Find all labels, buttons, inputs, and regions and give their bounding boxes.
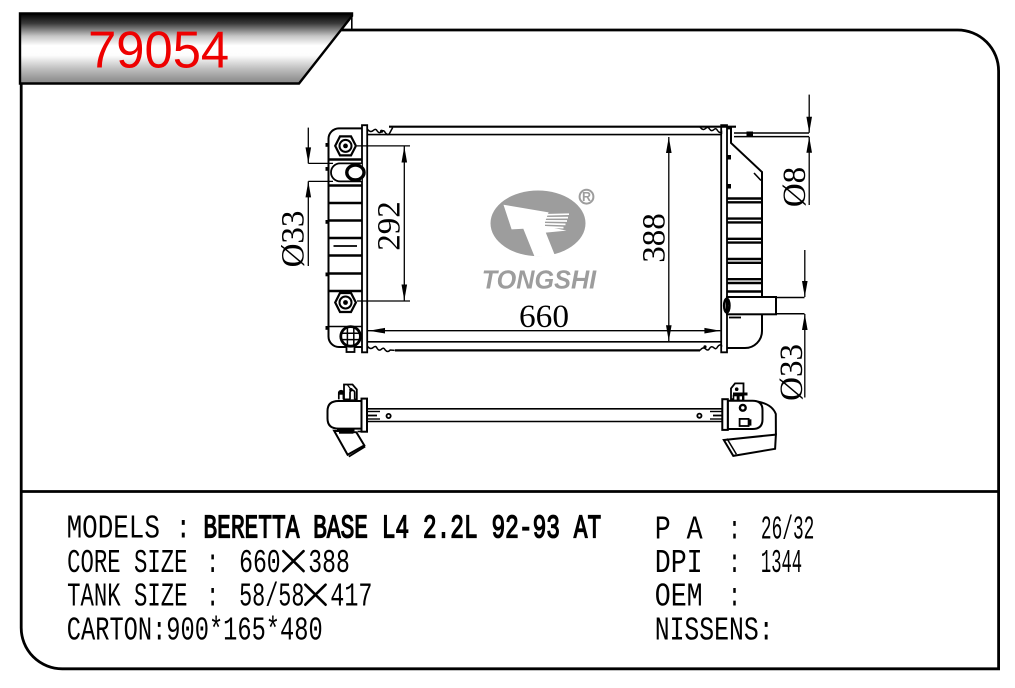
svg-text:DPI: DPI: [655, 546, 703, 583]
svg-text:26/32: 26/32: [761, 511, 814, 548]
svg-text::: :: [728, 579, 741, 616]
svg-text::: :: [206, 546, 219, 582]
svg-text:TANK SIZE: TANK SIZE: [67, 580, 187, 616]
svg-text:Ø33: Ø33: [276, 211, 312, 268]
svg-text:P A: P A: [655, 512, 703, 549]
svg-text:292: 292: [372, 201, 408, 251]
svg-text:Ø8: Ø8: [777, 167, 813, 207]
svg-text:TONGSHI: TONGSHI: [482, 267, 597, 295]
svg-text:CORE SIZE: CORE SIZE: [67, 546, 187, 582]
svg-text::: :: [206, 580, 219, 616]
svg-text:Ø33: Ø33: [774, 344, 810, 401]
svg-text:388: 388: [308, 544, 350, 582]
svg-text:BERETTA BASE L4 2.2L 92-93 AT: BERETTA BASE L4 2.2L 92-93 AT: [203, 510, 601, 548]
svg-text:MODELS :: MODELS :: [67, 510, 191, 548]
svg-text:660: 660: [239, 544, 281, 582]
svg-text:NISSENS:: NISSENS:: [655, 612, 774, 649]
svg-text:1344: 1344: [761, 544, 802, 582]
svg-text:CARTON:900*165*480: CARTON:900*165*480: [67, 612, 323, 650]
svg-text::: :: [728, 512, 741, 549]
svg-text:388: 388: [637, 213, 673, 263]
svg-text::: :: [728, 546, 741, 583]
svg-text:417: 417: [330, 578, 372, 616]
svg-text:58/58: 58/58: [239, 580, 304, 617]
svg-text:79054: 79054: [88, 22, 229, 80]
svg-text:660: 660: [519, 299, 569, 335]
svg-text:R: R: [582, 190, 591, 204]
svg-text:OEM: OEM: [655, 579, 703, 616]
